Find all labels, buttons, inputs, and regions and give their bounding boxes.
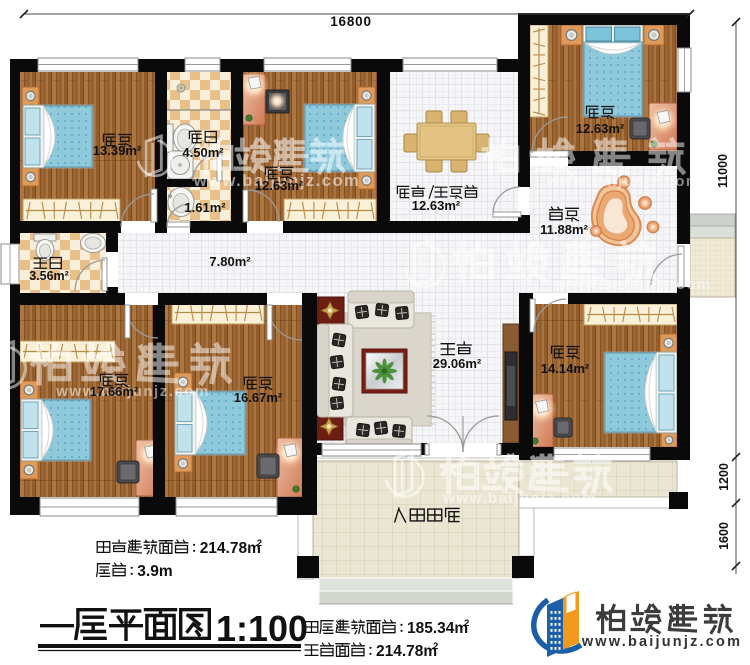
- svg-text:3.9m: 3.9m: [137, 563, 172, 580]
- svg-text:www.baijunjz.com: www.baijunjz.com: [581, 634, 742, 650]
- svg-text:11000: 11000: [716, 154, 730, 188]
- svg-text:1.61m²: 1.61m²: [184, 200, 226, 215]
- svg-text:2: 2: [464, 618, 469, 629]
- svg-text:1200: 1200: [717, 463, 731, 491]
- svg-text:12.63m²: 12.63m²: [576, 121, 625, 136]
- svg-text:29.06m²: 29.06m²: [433, 356, 482, 371]
- svg-text:16800: 16800: [330, 14, 372, 29]
- svg-text:2: 2: [433, 641, 438, 652]
- svg-text:2: 2: [257, 538, 262, 549]
- svg-text:11.88m²: 11.88m²: [540, 222, 588, 237]
- svg-text:185.34m: 185.34m: [407, 620, 468, 637]
- svg-text:16.67m²: 16.67m²: [234, 390, 283, 405]
- svg-text:1:100: 1:100: [216, 608, 308, 649]
- svg-text:3.56m²: 3.56m²: [29, 269, 69, 283]
- svg-text:www.baijunjz.com: www.baijunjz.com: [557, 276, 711, 293]
- svg-text:12.63m²: 12.63m²: [412, 198, 461, 213]
- svg-text:17.66m²: 17.66m²: [90, 384, 139, 399]
- svg-text:214.78m: 214.78m: [200, 540, 261, 557]
- svg-text:4.50m²: 4.50m²: [182, 145, 224, 160]
- svg-text:12.63m²: 12.63m²: [255, 178, 304, 193]
- svg-text:www.baijunjz.com: www.baijunjz.com: [442, 490, 596, 507]
- svg-text:214.78m: 214.78m: [376, 643, 437, 660]
- svg-text:www.baijunjz.com: www.baijunjz.com: [546, 173, 700, 190]
- svg-text:1600: 1600: [717, 522, 731, 550]
- svg-text:14.14m²: 14.14m²: [541, 361, 590, 376]
- svg-text:13.39m²: 13.39m²: [93, 143, 142, 158]
- svg-text:7.80m²: 7.80m²: [209, 254, 251, 269]
